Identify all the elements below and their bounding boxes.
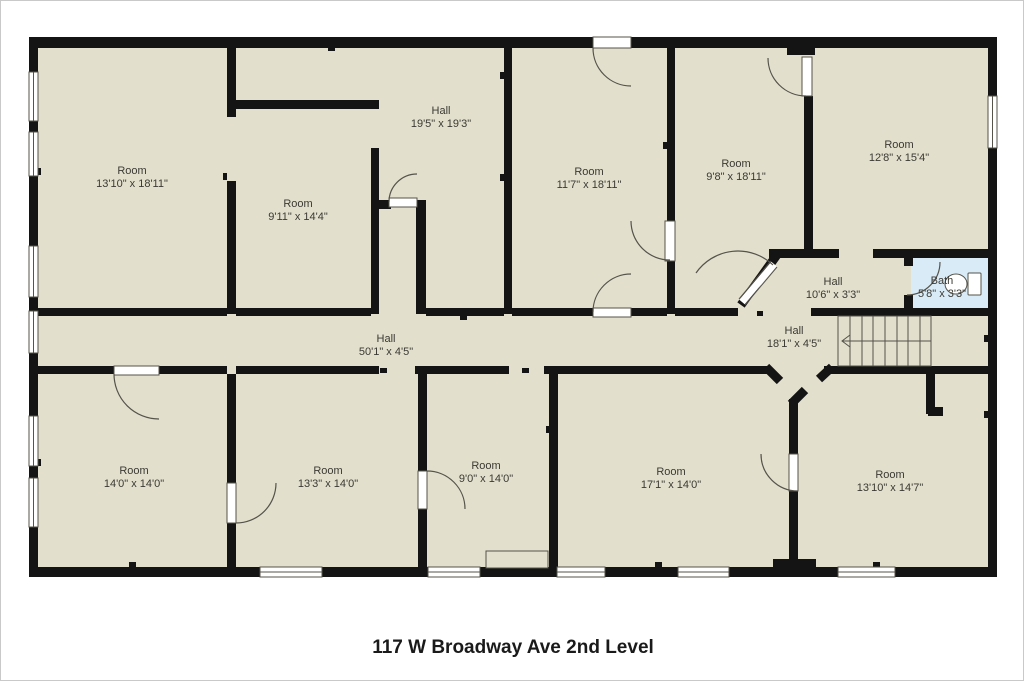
room-name: Room bbox=[857, 469, 923, 482]
room-5-label: Room 12'8" x 15'4" bbox=[869, 139, 929, 165]
floor-plan-canvas: Room 13'10" x 18'11" Room 9'11" x 14'4" … bbox=[0, 0, 1024, 681]
room-9-label: Room 17'1" x 14'0" bbox=[641, 466, 701, 492]
room-dims: 17'1" x 14'0" bbox=[641, 479, 701, 492]
room-dims: 13'10" x 18'11" bbox=[96, 178, 168, 191]
room-dims: 9'8" x 18'11" bbox=[706, 171, 766, 184]
room-dims: 13'10" x 14'7" bbox=[857, 482, 923, 495]
room-name: Hall bbox=[411, 105, 471, 118]
room-name: Room bbox=[459, 460, 513, 473]
room-name: Room bbox=[706, 158, 766, 171]
wall-pier bbox=[787, 37, 815, 55]
room-name: Room bbox=[557, 166, 622, 179]
room-dims: 10'6" x 3'3" bbox=[806, 289, 860, 302]
room-name: Hall bbox=[359, 333, 413, 346]
room-name: Room bbox=[104, 465, 164, 478]
room-2-label: Room 9'11" x 14'4" bbox=[268, 198, 328, 224]
room-dims: 9'11" x 14'4" bbox=[268, 211, 328, 224]
hall-stairs-label: Hall 18'1" x 4'5" bbox=[767, 325, 821, 351]
plan-title: 117 W Broadway Ave 2nd Level bbox=[372, 637, 654, 659]
room-dims: 12'8" x 15'4" bbox=[869, 152, 929, 165]
room-7-label: Room 13'3" x 14'0" bbox=[298, 465, 358, 491]
hall-long-label: Hall 50'1" x 4'5" bbox=[359, 333, 413, 359]
room-4-label: Room 9'8" x 18'11" bbox=[706, 158, 766, 184]
room-name: Room bbox=[298, 465, 358, 478]
room-dims: 5'8" x 3'3" bbox=[918, 288, 966, 301]
hall-small-label: Hall 10'6" x 3'3" bbox=[806, 276, 860, 302]
built-in-shelf bbox=[486, 551, 548, 568]
room-name: Room bbox=[869, 139, 929, 152]
room-name: Room bbox=[641, 466, 701, 479]
bath-label: Bath 5'8" x 3'3" bbox=[918, 275, 966, 301]
room-name: Hall bbox=[806, 276, 860, 289]
room-10-label: Room 13'10" x 14'7" bbox=[857, 469, 923, 495]
room-8-label: Room 9'0" x 14'0" bbox=[459, 460, 513, 486]
room-name: Room bbox=[268, 198, 328, 211]
room-name: Hall bbox=[767, 325, 821, 338]
room-dims: 14'0" x 14'0" bbox=[104, 478, 164, 491]
room-dims: 19'5" x 19'3" bbox=[411, 118, 471, 131]
floor-plan-drawing bbox=[1, 1, 1024, 681]
room-dims: 13'3" x 14'0" bbox=[298, 478, 358, 491]
room-name: Room bbox=[96, 165, 168, 178]
room-3-label: Room 11'7" x 18'11" bbox=[557, 166, 622, 192]
room-dims: 11'7" x 18'11" bbox=[557, 179, 622, 192]
room-6-label: Room 14'0" x 14'0" bbox=[104, 465, 164, 491]
hall-upper-label: Hall 19'5" x 19'3" bbox=[411, 105, 471, 131]
floor-area bbox=[34, 42, 992, 572]
room-name: Bath bbox=[918, 275, 966, 288]
room-1-label: Room 13'10" x 18'11" bbox=[96, 165, 168, 191]
room-dims: 50'1" x 4'5" bbox=[359, 346, 413, 359]
room-dims: 9'0" x 14'0" bbox=[459, 473, 513, 486]
room-dims: 18'1" x 4'5" bbox=[767, 338, 821, 351]
